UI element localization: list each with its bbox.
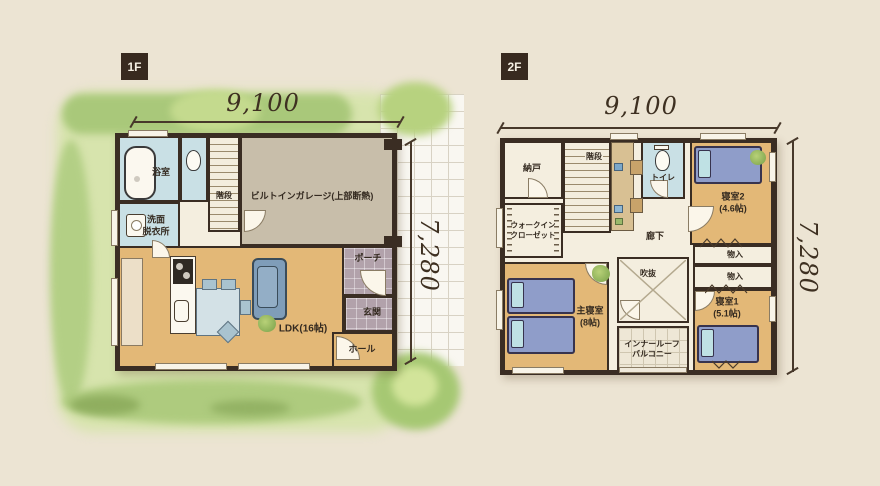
floorplan-canvas: 1F 2F 9,100 7,280 浴室 bbox=[0, 0, 880, 486]
floor1-badge-label: 1F bbox=[127, 60, 141, 74]
bathtub-drain bbox=[134, 176, 140, 182]
window-washroom-west bbox=[111, 210, 118, 246]
dining-chair-3 bbox=[240, 300, 251, 315]
label-hallway: 廊下 bbox=[646, 231, 664, 243]
tree-top-right bbox=[378, 82, 452, 136]
window-wic-west bbox=[496, 208, 503, 248]
grass-tuft-left bbox=[70, 395, 140, 415]
desk-item-blue-2 bbox=[614, 205, 623, 213]
toilet-fixture-1f bbox=[186, 150, 201, 171]
f2-height-dimline bbox=[792, 141, 794, 372]
study-chair-1 bbox=[630, 160, 643, 175]
label-void: 吹抜 bbox=[640, 269, 656, 279]
bush-highlight bbox=[392, 366, 438, 406]
label-balcony-line2: バルコニー bbox=[624, 350, 680, 360]
label-ldk: LDK(16帖) bbox=[279, 323, 327, 336]
label-bedroom1-size: (5.1帖) bbox=[713, 308, 741, 320]
plant-icon-master bbox=[592, 265, 610, 282]
window-stairs-top bbox=[610, 133, 638, 140]
pillow-master-1 bbox=[511, 282, 524, 308]
study-chair-2 bbox=[630, 198, 643, 213]
zigzag-bedroom1-south bbox=[712, 360, 742, 369]
plant-icon-ldk bbox=[258, 315, 276, 332]
label-wic-line1: ウォークイン bbox=[511, 220, 556, 230]
pillow-bedroom2 bbox=[698, 150, 711, 178]
pillow-bedroom1 bbox=[701, 329, 714, 357]
garage-door-cap-bottom bbox=[384, 236, 402, 247]
toilet-fixture-2f bbox=[655, 150, 670, 171]
f1-height-dimension: 7,280 bbox=[415, 218, 443, 292]
window-ldk-south-1 bbox=[155, 363, 227, 370]
floor2-badge-label: 2F bbox=[507, 60, 521, 74]
window-ldk-west bbox=[111, 278, 118, 346]
window-bedroom1-east bbox=[769, 296, 776, 322]
closet-zigzag-bedroom1 bbox=[705, 284, 749, 294]
label-garage: ビルトインガレージ(上部断熱) bbox=[251, 191, 374, 203]
balcony-railing bbox=[619, 367, 687, 373]
room-stairs-1f bbox=[208, 136, 240, 232]
label-bedroom1: 寝室1 (5.1帖) bbox=[713, 296, 741, 319]
label-washroom-line2: 脱衣所 bbox=[142, 226, 169, 238]
label-porch: ポーチ bbox=[354, 253, 381, 265]
label-bedroom2: 寝室2 (4.6帖) bbox=[719, 191, 747, 214]
window-bedroom2-east bbox=[769, 152, 776, 182]
label-master-size: (8帖) bbox=[576, 317, 603, 329]
grass-tuft-mid bbox=[210, 400, 290, 416]
label-hall: ホール bbox=[348, 344, 375, 356]
washing-machine-door bbox=[131, 220, 142, 231]
window-bath-top bbox=[128, 130, 168, 137]
f1-height-dimline bbox=[410, 142, 412, 362]
label-balcony: インナールーフ バルコニー bbox=[624, 340, 680, 361]
f2-width-dimline bbox=[500, 127, 777, 129]
label-bedroom2-name: 寝室2 bbox=[719, 191, 747, 203]
toilet-tank-2f bbox=[654, 145, 669, 150]
plant-icon-bedroom2 bbox=[750, 150, 766, 165]
label-wic-line2: クローゼット bbox=[511, 230, 556, 240]
window-master-south bbox=[512, 367, 564, 374]
label-closet-a: 物入 bbox=[727, 250, 743, 260]
label-stairs-2f: 階段 bbox=[585, 152, 603, 162]
label-wic: ウォークイン クローゼット bbox=[511, 220, 556, 240]
label-closet-b: 物入 bbox=[727, 272, 743, 282]
garage-door-cap-top bbox=[384, 139, 402, 150]
pillow-master-2 bbox=[511, 320, 524, 348]
floor1-badge: 1F bbox=[121, 53, 148, 80]
sofa-seat bbox=[257, 266, 278, 308]
f1-width-dimension: 9,100 bbox=[226, 89, 300, 117]
floor2-badge: 2F bbox=[501, 53, 528, 80]
kitchen-sink bbox=[174, 300, 189, 322]
window-master-west bbox=[496, 290, 503, 330]
stove-burner-1 bbox=[176, 263, 183, 270]
label-entrance: 玄関 bbox=[363, 307, 381, 319]
dining-chair-1 bbox=[202, 279, 217, 290]
stove bbox=[173, 259, 193, 284]
stove-burner-2 bbox=[183, 272, 190, 279]
label-washroom: 洗面 脱衣所 bbox=[142, 214, 169, 237]
label-stairs-1f: 階段 bbox=[216, 191, 232, 201]
kitchen-cabinet bbox=[121, 258, 143, 346]
label-storeroom: 納戸 bbox=[523, 163, 541, 175]
label-toilet-2f: トイレ bbox=[651, 173, 675, 183]
f2-height-dimension: 7,280 bbox=[794, 220, 822, 294]
f2-width-dimension: 9,100 bbox=[604, 92, 678, 120]
closet-zigzag-bedroom2 bbox=[700, 238, 744, 248]
label-balcony-line1: インナールーフ bbox=[624, 340, 680, 350]
label-master-name: 主寝室 bbox=[576, 305, 603, 317]
window-ldk-south-2 bbox=[238, 363, 310, 370]
label-bedroom2-size: (4.6帖) bbox=[719, 203, 747, 215]
desk-item-blue-1 bbox=[614, 163, 623, 171]
f1-width-dimline bbox=[133, 121, 401, 123]
dining-chair-2 bbox=[221, 279, 236, 290]
desk-item-green bbox=[615, 218, 623, 225]
window-bedroom2-top bbox=[700, 133, 746, 140]
label-bedroom1-name: 寝室1 bbox=[713, 296, 741, 308]
label-bath: 浴室 bbox=[152, 167, 170, 179]
label-master: 主寝室 (8帖) bbox=[576, 305, 603, 328]
hedge-left bbox=[50, 140, 92, 405]
label-washroom-line1: 洗面 bbox=[142, 214, 169, 226]
